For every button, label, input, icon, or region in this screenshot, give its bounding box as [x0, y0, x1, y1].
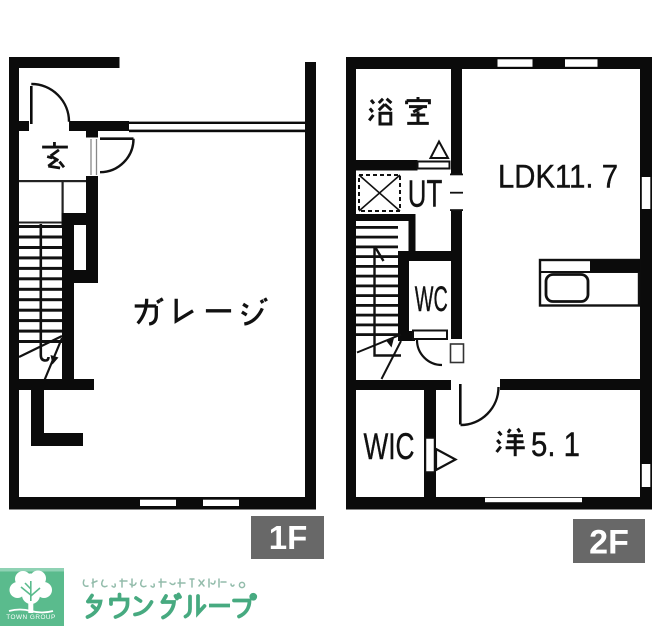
- svg-text:WC: WC: [415, 280, 448, 319]
- svg-text:WIC: WIC: [364, 426, 415, 467]
- svg-text:UT: UT: [408, 174, 443, 216]
- svg-text:2F: 2F: [589, 524, 629, 562]
- svg-text:5. 1: 5. 1: [531, 426, 580, 464]
- svg-text:LDK11. 7: LDK11. 7: [498, 159, 618, 195]
- svg-text:1F: 1F: [269, 519, 308, 556]
- svg-text:TOWN GROUP: TOWN GROUP: [6, 614, 56, 621]
